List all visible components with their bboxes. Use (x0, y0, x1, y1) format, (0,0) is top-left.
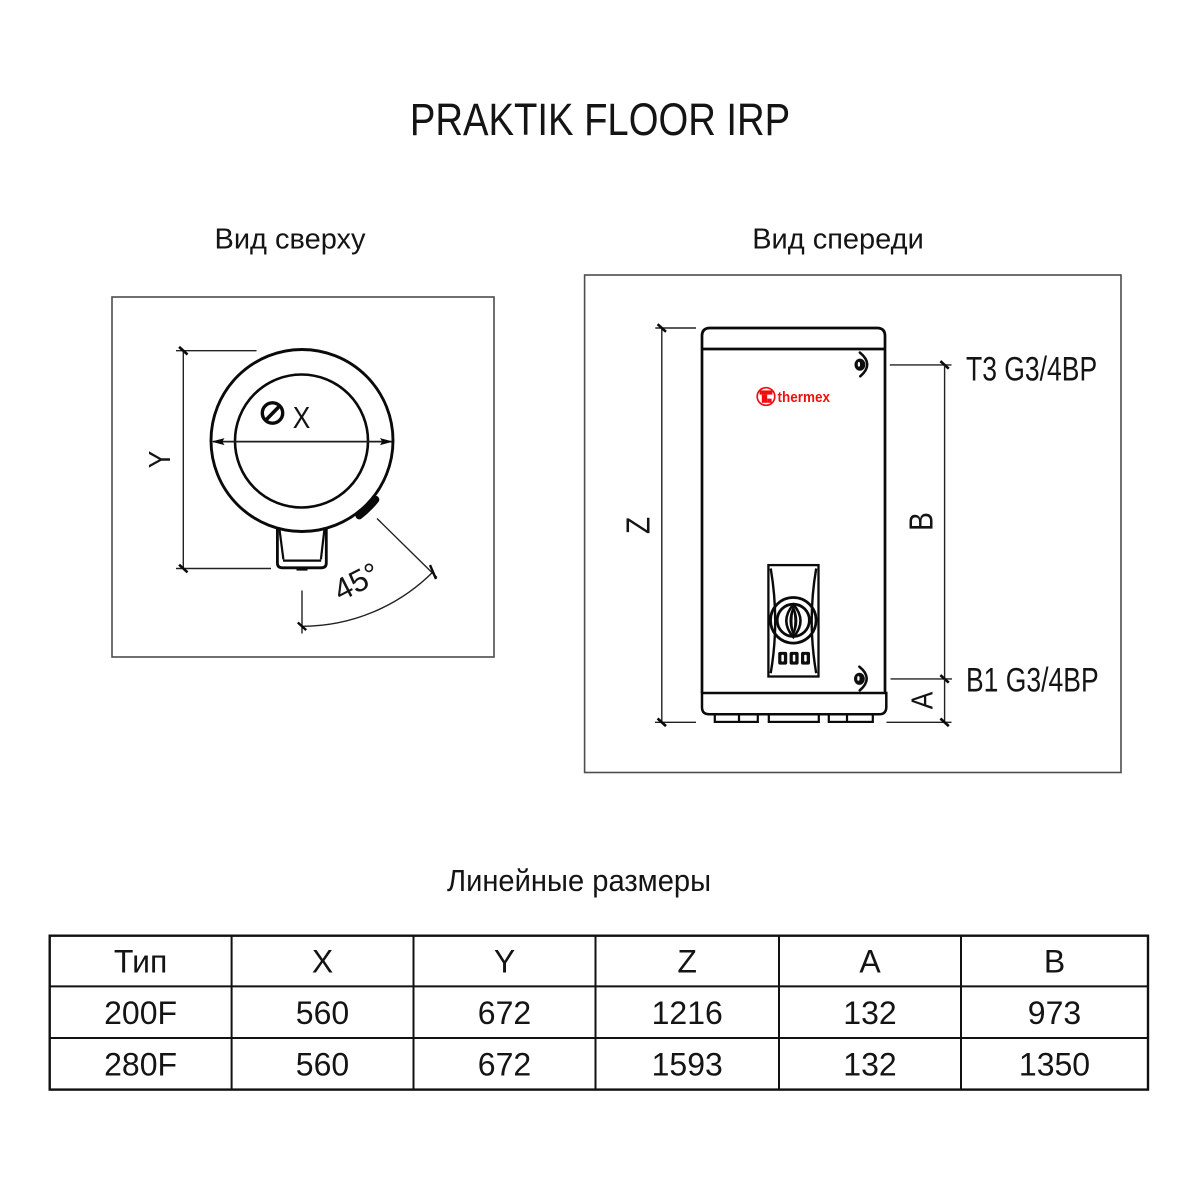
svg-text:B: B (904, 512, 941, 531)
svg-text:T3 G3/4BP: T3 G3/4BP (966, 351, 1097, 389)
svg-text:Вид сверху: Вид сверху (214, 224, 366, 256)
svg-text:Y: Y (494, 944, 515, 980)
svg-text:132: 132 (843, 995, 896, 1031)
svg-text:PRAKTIK FLOOR IRP: PRAKTIK FLOOR IRP (410, 94, 790, 145)
svg-text:973: 973 (1028, 995, 1081, 1031)
svg-text:560: 560 (296, 1047, 349, 1083)
svg-text:Вид спереди: Вид спереди (752, 224, 924, 256)
svg-text:B: B (1044, 944, 1065, 980)
svg-text:1216: 1216 (652, 995, 723, 1031)
svg-text:672: 672 (478, 995, 531, 1031)
svg-text:Y: Y (143, 451, 177, 469)
svg-text:A: A (906, 691, 940, 709)
svg-text:1350: 1350 (1019, 1047, 1090, 1083)
svg-text:Линейные размеры: Линейные размеры (447, 864, 711, 898)
svg-text:280F: 280F (104, 1047, 177, 1083)
svg-text:672: 672 (478, 1047, 531, 1083)
svg-text:1593: 1593 (652, 1047, 723, 1083)
svg-text:Z: Z (620, 517, 657, 534)
svg-text:200F: 200F (104, 995, 177, 1031)
svg-text:X: X (293, 401, 311, 435)
svg-text:132: 132 (843, 1047, 896, 1083)
svg-text:A: A (859, 944, 881, 980)
svg-text:Тип: Тип (114, 944, 167, 980)
svg-text:X: X (312, 944, 333, 980)
svg-text:B1 G3/4BP: B1 G3/4BP (966, 661, 1099, 699)
svg-text:thermex: thermex (778, 389, 831, 406)
svg-text:45°: 45° (328, 556, 386, 608)
svg-text:Z: Z (677, 944, 697, 980)
svg-text:560: 560 (296, 995, 349, 1031)
